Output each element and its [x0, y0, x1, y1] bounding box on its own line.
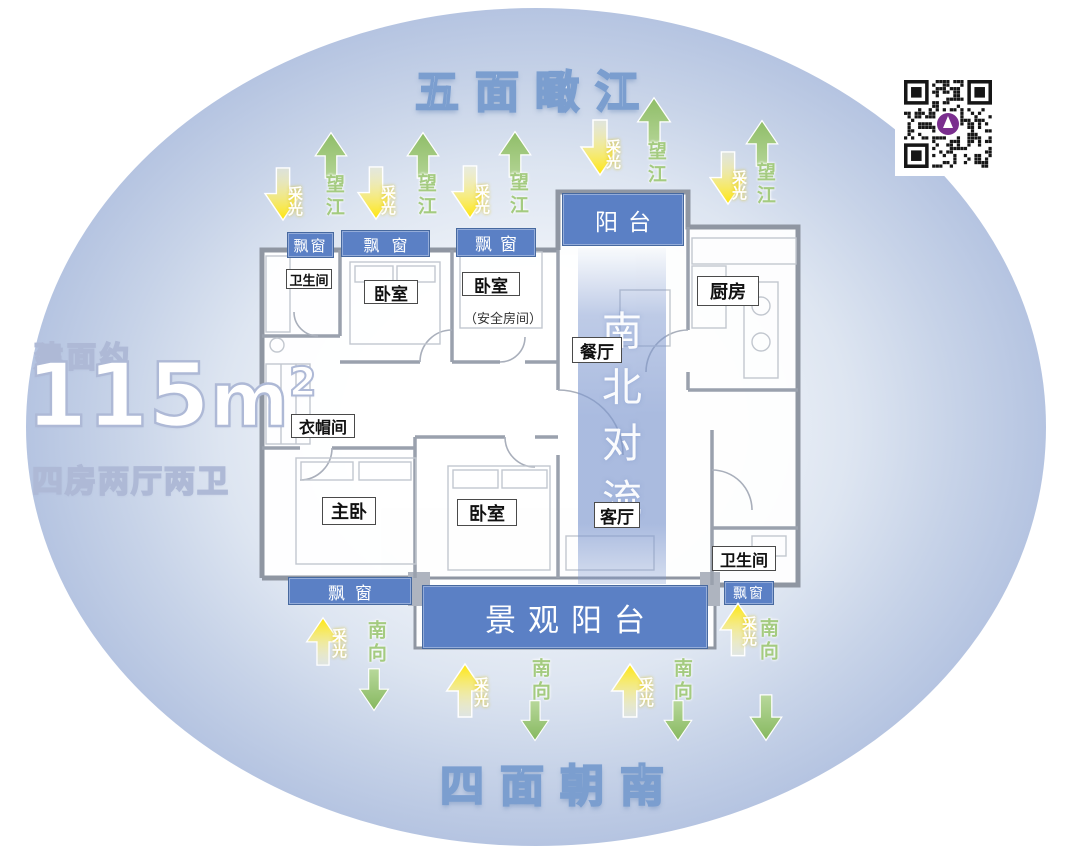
river-view-label: 望江: [753, 162, 775, 208]
south-facing-label: 南向: [670, 658, 692, 704]
south-facing-arrow: [352, 668, 396, 712]
daylight-arrow-label: 采光: [356, 172, 396, 227]
room-label-living-room: 客厅: [594, 502, 640, 528]
room-label-bedroom-top-1: 卧室: [364, 280, 418, 304]
room-label-bedroom-bottom: 卧室: [457, 499, 517, 526]
floorplan-poster: 南 北 对 流 飘窗 飘窗 飘窗 阳台 飘窗 景观阳台 飘窗 卫生间 卧室 卧室…: [0, 0, 1072, 854]
area-config: 四房两厅两卫: [32, 456, 230, 501]
south-facing-label: 南向: [364, 620, 386, 666]
area-unit: m: [210, 355, 289, 444]
daylight-arrow: 采光: [606, 662, 654, 718]
top-title: 五面瞰江: [415, 56, 655, 120]
daylight-arrow-label: 采光: [450, 171, 490, 226]
daylight-arrow-label: 采光: [709, 157, 747, 212]
label-bay-window-top-left: 飘窗: [287, 232, 334, 258]
daylight-arrow-label: 采光: [606, 664, 654, 720]
river-view-arrow: [496, 130, 534, 178]
flow-char: 对: [602, 424, 642, 464]
daylight-arrow-label: 采光: [719, 602, 757, 660]
bottom-title: 四面朝南: [440, 750, 680, 814]
qr-code: [895, 72, 1001, 176]
qr-code-pattern: [904, 80, 992, 168]
south-facing-arrow: [742, 694, 790, 742]
daylight-arrow: 采光: [356, 166, 396, 221]
daylight-arrow: 采光: [709, 151, 747, 206]
area-sup: 2: [289, 360, 317, 406]
daylight-arrow-label: 采光: [441, 664, 489, 720]
daylight-arrow: 采光: [441, 662, 489, 718]
room-label-kitchen: 厨房: [697, 276, 759, 306]
river-view-arrow: [404, 131, 442, 179]
label-bay-window-bottom-left: 飘窗: [288, 577, 412, 605]
label-balcony: 阳台: [562, 193, 684, 246]
river-view-arrow: [743, 119, 781, 167]
daylight-arrow: 采光: [579, 119, 621, 177]
south-facing-arrow: [655, 700, 701, 742]
river-view-label: 望江: [414, 173, 436, 219]
label-bay-window-top-right: 飘窗: [456, 228, 536, 257]
daylight-arrow: 采光: [719, 600, 757, 658]
room-label-bathroom-top: 卫生间: [286, 269, 332, 289]
daylight-arrow: 采光: [299, 616, 347, 666]
daylight-arrow-label: 采光: [299, 618, 347, 668]
south-facing-label: 南向: [756, 618, 778, 664]
river-view-label: 望江: [506, 172, 528, 218]
north-south-flow-banner: 南 北 对 流: [578, 248, 666, 584]
label-scenic-balcony: 景观阳台: [422, 585, 708, 649]
daylight-arrow: 采光: [263, 167, 303, 222]
daylight-arrow-label: 采光: [579, 125, 621, 183]
river-view-label: 望江: [644, 141, 666, 187]
area-value: 115m2: [26, 348, 317, 445]
daylight-arrow-label: 采光: [263, 173, 303, 228]
room-label-dining-room: 餐厅: [572, 337, 622, 363]
daylight-arrow: 采光: [450, 165, 490, 220]
room-label-bathroom-bottom: 卫生间: [712, 546, 776, 571]
river-view-label: 望江: [322, 174, 344, 220]
room-label-master-bedroom: 主卧: [322, 497, 376, 525]
label-bay-window-top-middle: 飘窗: [341, 230, 430, 257]
south-facing-label: 南向: [528, 658, 550, 704]
flow-char: 北: [602, 368, 642, 408]
area-number: 115: [26, 344, 210, 447]
south-facing-arrow: [512, 700, 558, 742]
room-label-bedroom-top-2: 卧室: [462, 272, 520, 296]
river-view-arrow: [312, 131, 350, 179]
room-label-safe-room: （安全房间）: [464, 308, 542, 327]
